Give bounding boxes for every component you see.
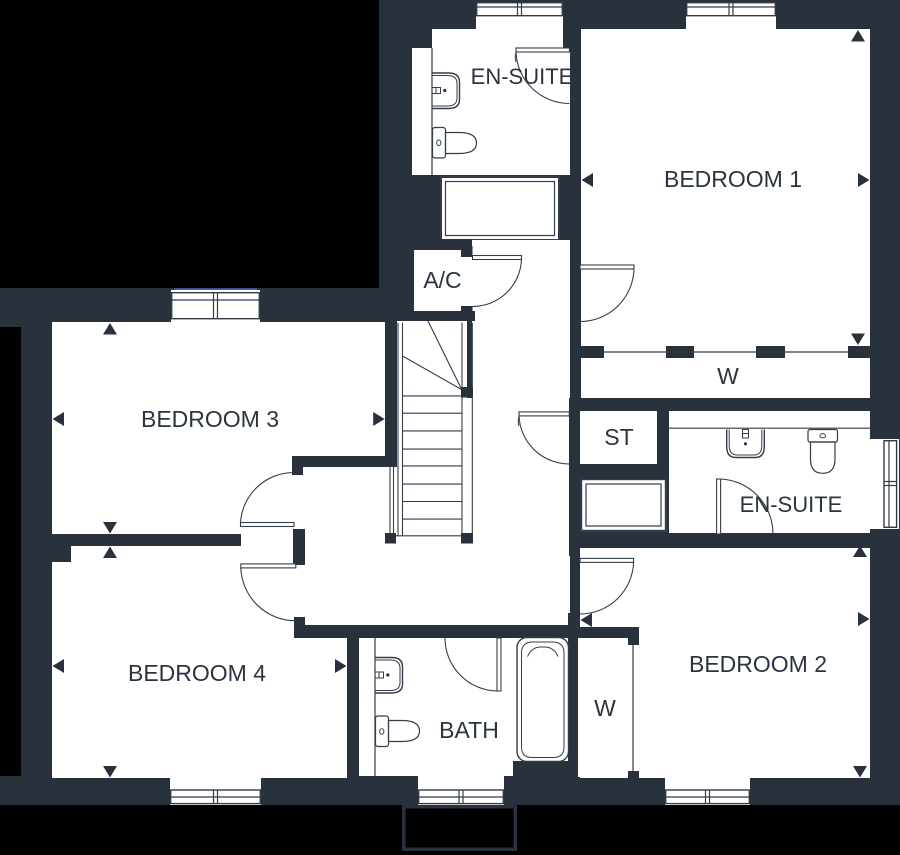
svg-text:ST: ST bbox=[604, 424, 633, 450]
svg-text:W: W bbox=[594, 695, 616, 721]
svg-text:A/C: A/C bbox=[423, 267, 461, 293]
svg-text:W: W bbox=[717, 363, 739, 389]
svg-text:BEDROOM 4: BEDROOM 4 bbox=[128, 660, 266, 686]
svg-text:BEDROOM 2: BEDROOM 2 bbox=[689, 651, 827, 677]
svg-text:BATH: BATH bbox=[439, 717, 499, 743]
svg-text:BEDROOM 3: BEDROOM 3 bbox=[141, 406, 279, 432]
svg-text:EN-SUITE: EN-SUITE bbox=[471, 64, 574, 89]
svg-text:BEDROOM 1: BEDROOM 1 bbox=[664, 166, 802, 192]
svg-text:EN-SUITE: EN-SUITE bbox=[740, 492, 843, 517]
